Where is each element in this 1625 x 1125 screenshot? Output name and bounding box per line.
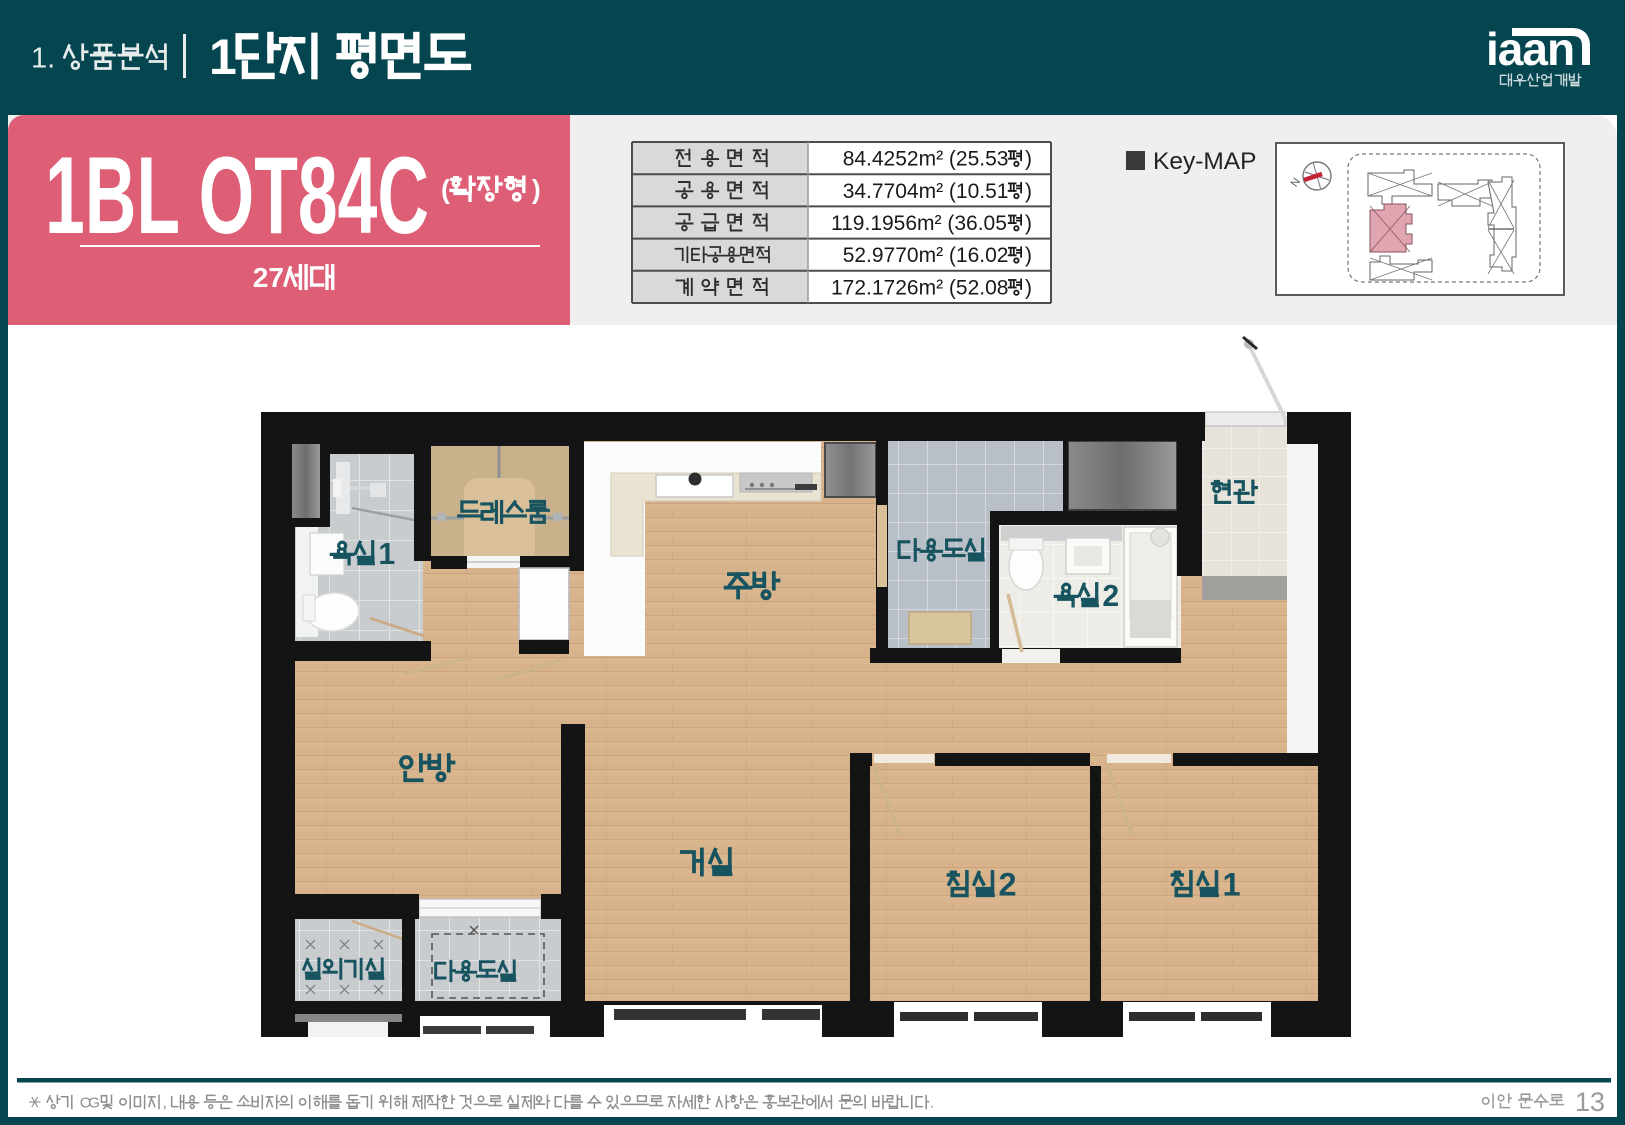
svg-text:52.9770m² (16.02: 52.9770m² (16.02: [843, 244, 1009, 267]
svg-text:.: .: [47, 42, 55, 74]
svg-text:): ): [1025, 276, 1032, 299]
svg-text:2: 2: [1102, 580, 1119, 613]
svg-text:7: 7: [268, 262, 284, 293]
svg-text:119.1956m² (36.05: 119.1956m² (36.05: [831, 212, 1007, 235]
svg-text:1: 1: [378, 538, 395, 571]
svg-text:2: 2: [253, 262, 269, 293]
svg-text:13: 13: [1575, 1087, 1605, 1117]
svg-text:2: 2: [999, 867, 1017, 903]
svg-text:,: ,: [163, 1095, 167, 1112]
svg-text:1: 1: [31, 42, 47, 74]
svg-text:.: .: [930, 1095, 934, 1112]
svg-text:84.4252m² (25.53: 84.4252m² (25.53: [843, 148, 1009, 171]
svg-text:1BL OT84C: 1BL OT84C: [45, 133, 429, 256]
svg-text:1: 1: [209, 29, 237, 85]
svg-text:172.1726m² (52.08: 172.1726m² (52.08: [831, 276, 1008, 299]
svg-text:): ): [1025, 180, 1032, 203]
svg-text:G: G: [88, 1095, 100, 1112]
svg-text:(: (: [441, 175, 450, 205]
svg-text:): ): [1025, 148, 1032, 171]
svg-text:1: 1: [1223, 867, 1241, 903]
svg-text:): ): [1025, 244, 1032, 267]
svg-text:34.7704m² (10.51: 34.7704m² (10.51: [843, 180, 1009, 203]
svg-text:): ): [532, 175, 541, 205]
svg-text:): ): [1025, 212, 1032, 235]
svg-text:Key-MAP: Key-MAP: [1153, 148, 1256, 175]
